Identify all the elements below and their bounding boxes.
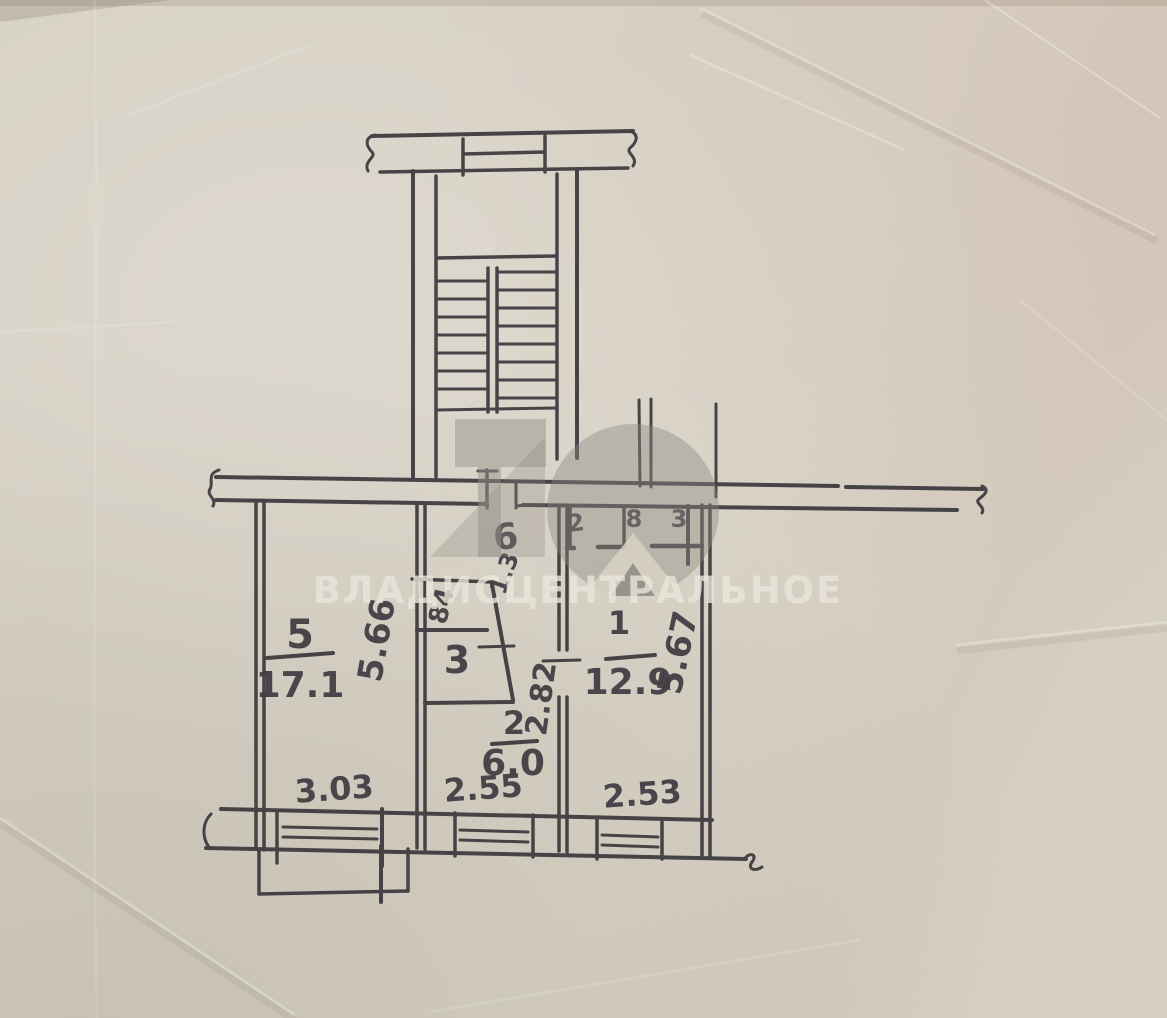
bottom-wall-outer-line [206,848,746,859]
stair-base-line [437,408,556,410]
room1-door-tick [543,660,580,661]
floorplan-svg: 6 5 17.1 5.66 1 12.9 5.67 2 6.0 2.82 3 8… [0,0,1167,1018]
bottom-break-left [204,814,211,847]
top-wall-inner-line [380,168,628,172]
room3-number: 3 [444,638,470,682]
floorplan-photo: 6 5 17.1 5.66 1 12.9 5.67 2 6.0 2.82 3 8… [0,0,1167,1018]
corridor-top-line-b [846,487,983,489]
room1-depth-dim: 5.67 [650,608,707,698]
room5-area: 17.1 [256,665,345,706]
exterior-top-wall [367,131,636,175]
window-glazing [283,827,658,847]
agency-watermark: ВЛАДИСЦЕНТРАЛЬНОЕ [313,419,844,612]
room3-door-tick [479,646,514,647]
wall-break-right [629,131,636,166]
stair-landing-line [437,256,556,258]
top-wall-outer-line [372,131,633,136]
room1-underline [606,655,655,659]
exterior-bottom-wall [204,809,762,869]
photo-corner-shade [0,0,170,22]
bottom-break-right [745,855,762,870]
stair-window-line [463,152,545,154]
window-room5-dim: 3.03 [294,767,375,810]
room3-bottom-wall [425,702,513,703]
balcony [259,846,408,902]
balcony-front [259,891,408,894]
window-room1-dim: 2.53 [602,772,683,815]
watermark-text: ВЛАДИСЦЕНТРАЛЬНОЕ [313,569,844,612]
room5-number: 5 [286,612,314,658]
wall-break-left [367,135,375,171]
room5-underline [267,653,333,658]
window-kitchen-dim: 2.55 [443,766,524,809]
